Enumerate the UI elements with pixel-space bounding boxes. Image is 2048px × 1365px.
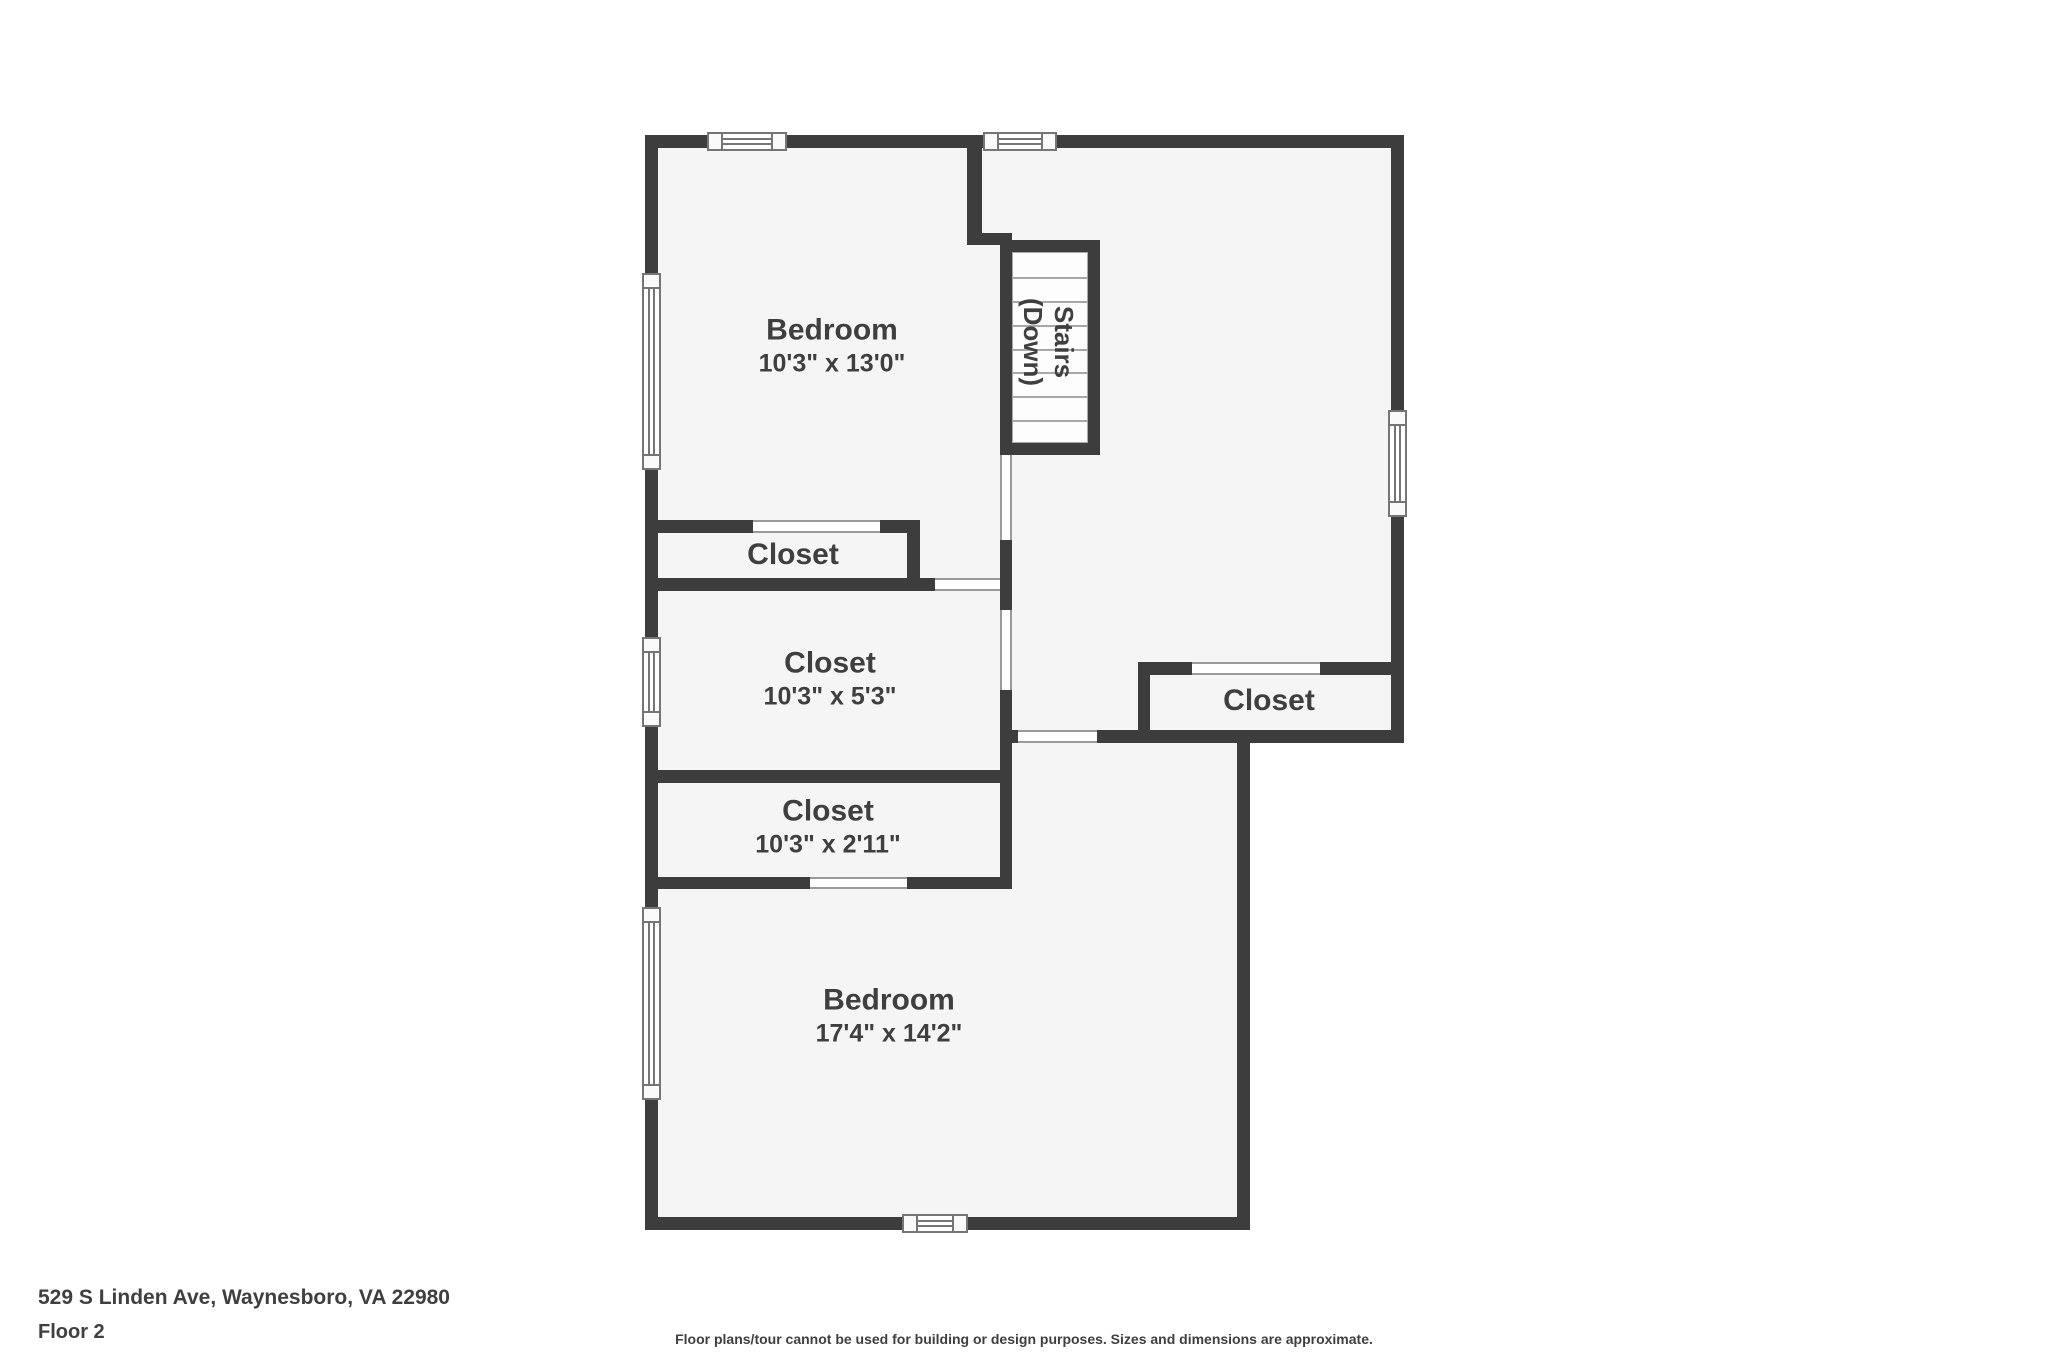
room-name: Closet [764,646,897,682]
room-name: Bedroom [816,983,963,1019]
window [642,907,661,1100]
wall-hallway-west-b [1000,690,1012,888]
window [642,273,661,470]
floor-area-lower [645,135,1250,1230]
door-opening-closet-small [753,520,880,533]
stairs-label: Stairs [1048,298,1079,386]
stair-tread [1013,277,1087,279]
exterior-wall-right-lower [1237,730,1250,1230]
room-dimensions: 10'3" x 5'3" [764,682,897,713]
stair-tread [1013,420,1087,422]
room-label-bedroom-upper: Bedroom 10'3" x 13'0" [759,313,906,380]
room-name: Closet [1223,683,1315,719]
window [983,132,1057,151]
room-dimensions: 17'4" x 14'2" [816,1019,963,1050]
room-name: Closet [747,537,839,573]
stair-tread [1013,396,1087,398]
window [642,637,661,727]
wall-hallway-west-a [1000,540,1012,610]
room-label-closet-lower: Closet 10'3" x 2'11" [755,794,900,861]
door-opening-closet-mid-north [935,578,1000,591]
wall-closet-lower-bottom-a [658,877,810,889]
stairs-direction-label: (Down) [1017,298,1048,386]
wall-closet-lower-bottom-b [907,877,1012,889]
room-name: Bedroom [759,313,906,349]
door-opening-bedroom-upper [1000,455,1012,540]
room-label-closet-small: Closet [747,537,839,573]
wall-closet-mid-bottom [658,770,1012,783]
wall-stairs-left [1000,240,1012,455]
wall-bedroom-upper-east [967,148,982,245]
wall-right-closet-top-b [1320,662,1391,675]
floorplan-canvas: Bedroom 10'3" x 13'0" Stairs (Down) Clos… [0,0,2048,1365]
room-dimensions: 10'3" x 2'11" [755,830,900,861]
room-label-bedroom-lower: Bedroom 17'4" x 14'2" [816,983,963,1050]
window [1388,410,1407,517]
wall-right-closet-top-a [1138,662,1192,675]
door-opening-bedroom-lower [1018,730,1097,743]
window [902,1214,968,1233]
door-opening-closet-mid-east [1000,610,1012,690]
wall-stairs-bottom [1000,443,1100,455]
room-label-stairs: Stairs (Down) [1017,298,1079,386]
room-label-closet-right: Closet [1223,683,1315,719]
room-label-closet-mid: Closet 10'3" x 5'3" [764,646,897,713]
door-opening-closet-lower [810,877,907,889]
wall-right-closet-bottom [1138,730,1404,743]
property-address: 529 S Linden Ave, Waynesboro, VA 22980 [38,1286,450,1310]
disclaimer-text: Floor plans/tour cannot be used for buil… [0,1331,2048,1347]
window [707,132,787,151]
wall-closet-small-bottom [658,578,935,591]
wall-stairs-right [1088,240,1100,455]
room-name: Closet [755,794,900,830]
room-dimensions: 10'3" x 13'0" [759,349,906,380]
door-opening-closet-right [1192,662,1320,675]
wall-stairs-top [1000,240,1100,252]
wall-closet-small-top-a [658,520,753,533]
